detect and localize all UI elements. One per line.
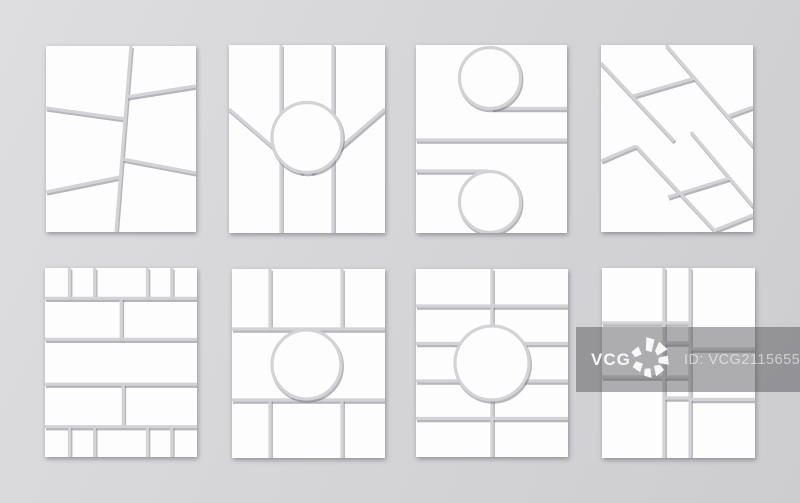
template-1-slanted-grid [46, 46, 196, 232]
vcg-pinwheel-icon [628, 336, 674, 382]
template-6-grid-center-circle [232, 269, 385, 458]
template-5-banded-rows [45, 268, 197, 457]
template-7-rows-center-circle [416, 269, 568, 457]
watermark-band: VCG ID: VCG211565527797 [576, 327, 800, 392]
template-4-diagonal-lattice [601, 45, 753, 232]
template-2-columns-circle [229, 45, 385, 233]
template-3-split-circles [416, 45, 567, 233]
watermark-brand-label: VCG [591, 350, 631, 370]
collage-board: VCG ID: VCG211565527797 [0, 0, 800, 503]
watermark-id-label: ID: VCG211565527797 [684, 352, 800, 368]
